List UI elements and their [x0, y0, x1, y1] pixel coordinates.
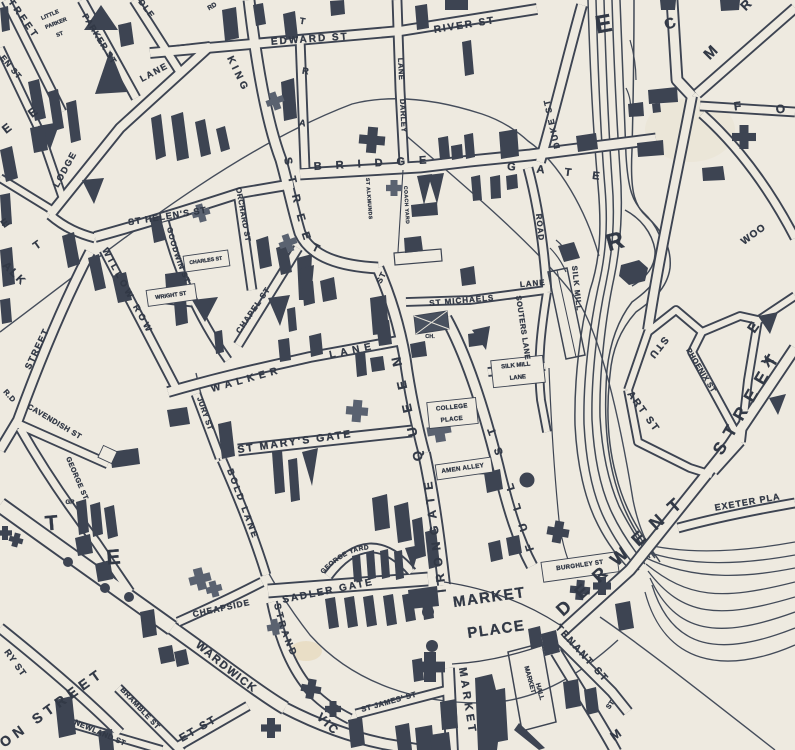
svg-text:T: T	[44, 511, 59, 535]
svg-text:CH.: CH.	[425, 334, 435, 340]
svg-text:E: E	[105, 545, 121, 569]
svg-text:DARLEY: DARLEY	[398, 99, 409, 133]
svg-text:GR: GR	[66, 500, 76, 506]
svg-text:O: O	[775, 101, 786, 116]
svg-text:LANE: LANE	[396, 58, 406, 81]
